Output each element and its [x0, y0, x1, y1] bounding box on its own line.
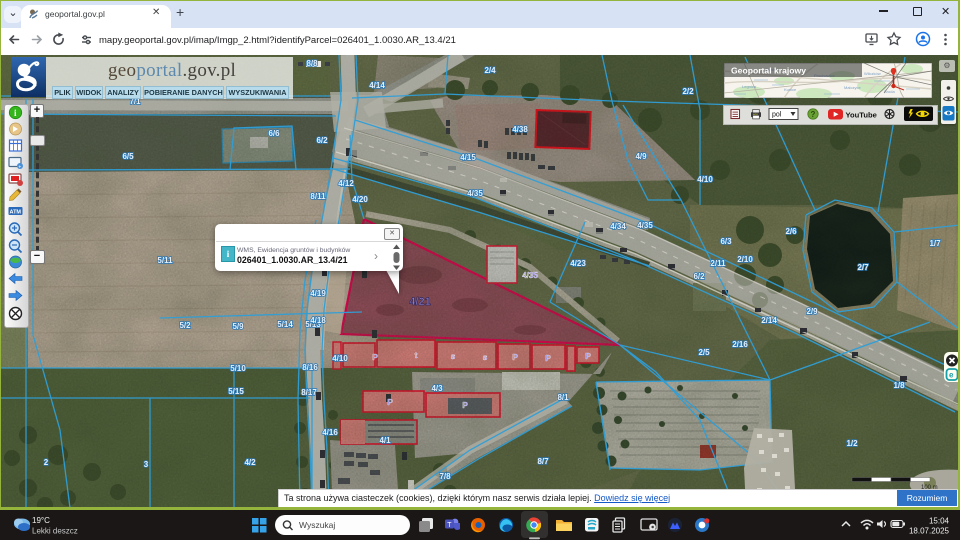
- svg-text:eco: eco: [753, 112, 758, 116]
- svg-text:1/2: 1/2: [846, 439, 858, 448]
- svg-text:2/16: 2/16: [732, 340, 748, 349]
- svg-text:5/2: 5/2: [179, 321, 191, 330]
- svg-text:8/1: 8/1: [557, 393, 569, 402]
- svg-text:4/10: 4/10: [332, 354, 348, 363]
- svg-text:+: +: [18, 164, 21, 170]
- svg-text:2/6: 2/6: [785, 227, 797, 236]
- svg-text:2/9: 2/9: [806, 307, 818, 316]
- svg-text:ATM: ATM: [10, 210, 22, 216]
- svg-text:6/6: 6/6: [268, 129, 280, 138]
- svg-text:5/9: 5/9: [232, 322, 244, 331]
- svg-text:s: s: [451, 352, 456, 361]
- svg-text:P: P: [372, 353, 378, 362]
- svg-text:1/7: 1/7: [929, 239, 941, 248]
- svg-text:4/20: 4/20: [352, 195, 368, 204]
- svg-text:Legnica: Legnica: [742, 84, 757, 89]
- svg-text:5/15: 5/15: [228, 387, 244, 396]
- svg-text:2/7: 2/7: [857, 263, 869, 272]
- svg-text:2: 2: [44, 458, 49, 467]
- svg-text:8/17: 8/17: [301, 388, 317, 397]
- svg-text:4/10: 4/10: [697, 175, 713, 184]
- svg-text:4/35: 4/35: [637, 221, 653, 230]
- svg-text:4/3: 4/3: [431, 384, 443, 393]
- svg-text:8/7: 8/7: [537, 457, 549, 466]
- svg-text:4/21: 4/21: [409, 296, 430, 308]
- svg-text:2/14: 2/14: [761, 316, 777, 325]
- svg-text:4/2: 4/2: [244, 458, 256, 467]
- svg-text:2/4: 2/4: [484, 66, 496, 75]
- svg-text:7/8: 7/8: [439, 472, 451, 481]
- svg-text:4/35: 4/35: [467, 189, 483, 198]
- svg-text:6/2: 6/2: [693, 272, 705, 281]
- svg-text:4/38: 4/38: [512, 125, 528, 134]
- svg-text:6/2: 6/2: [316, 136, 328, 145]
- svg-text:4/19: 4/19: [310, 289, 326, 298]
- svg-text:YouTube: YouTube: [846, 111, 877, 120]
- svg-text:18.07.2025: 18.07.2025: [909, 527, 950, 536]
- svg-text:4/9: 4/9: [635, 152, 647, 161]
- svg-text:19°C: 19°C: [32, 516, 50, 525]
- svg-text:2/2: 2/2: [682, 87, 694, 96]
- svg-text:e: e: [949, 371, 954, 380]
- svg-text:P: P: [462, 401, 468, 410]
- svg-text:5/14: 5/14: [277, 320, 293, 329]
- svg-text:4/14: 4/14: [369, 81, 385, 90]
- svg-text:6/5: 6/5: [122, 152, 134, 161]
- svg-text:Wyszukaj: Wyszukaj: [299, 520, 335, 530]
- svg-text:t: t: [415, 351, 418, 360]
- svg-text:Malczyce: Malczyce: [844, 85, 861, 90]
- svg-text:Kunice: Kunice: [784, 87, 797, 92]
- svg-text:8/16: 8/16: [302, 363, 318, 372]
- svg-text:T: T: [447, 522, 452, 529]
- svg-text:4/16: 4/16: [322, 428, 338, 437]
- svg-text:P: P: [545, 354, 551, 363]
- svg-text:5/10: 5/10: [230, 364, 246, 373]
- svg-text:8/11: 8/11: [310, 192, 326, 201]
- svg-text:?: ?: [811, 110, 816, 119]
- svg-text:4/34: 4/34: [610, 222, 626, 231]
- svg-text:8/8: 8/8: [306, 59, 318, 68]
- svg-text:4/35: 4/35: [522, 271, 538, 280]
- svg-text:4/1: 4/1: [379, 436, 391, 445]
- svg-text:4/15: 4/15: [460, 153, 476, 162]
- svg-text:2/11: 2/11: [710, 259, 726, 268]
- svg-text:2/10: 2/10: [737, 255, 753, 264]
- svg-text:P: P: [387, 398, 393, 407]
- svg-text:5/11: 5/11: [157, 256, 173, 265]
- svg-text:Wilczków: Wilczków: [864, 71, 881, 76]
- svg-text:6/3: 6/3: [720, 237, 732, 246]
- svg-text:pol: pol: [772, 112, 782, 119]
- svg-text:P: P: [585, 352, 591, 361]
- svg-text:Środa: Środa: [884, 89, 895, 94]
- svg-text:4/23: 4/23: [570, 259, 586, 268]
- svg-text:Lekki deszcz: Lekki deszcz: [32, 527, 78, 536]
- svg-text:s: s: [483, 353, 488, 362]
- svg-text:4/18: 4/18: [310, 316, 326, 325]
- svg-text:15:04: 15:04: [929, 517, 950, 526]
- svg-text:2/5: 2/5: [698, 348, 710, 357]
- svg-text:1/8: 1/8: [893, 381, 905, 390]
- svg-text:P: P: [512, 353, 518, 362]
- svg-text:Geoportal krajowy: Geoportal krajowy: [731, 66, 806, 76]
- svg-text:3: 3: [144, 460, 149, 469]
- svg-text:4/12: 4/12: [338, 179, 354, 188]
